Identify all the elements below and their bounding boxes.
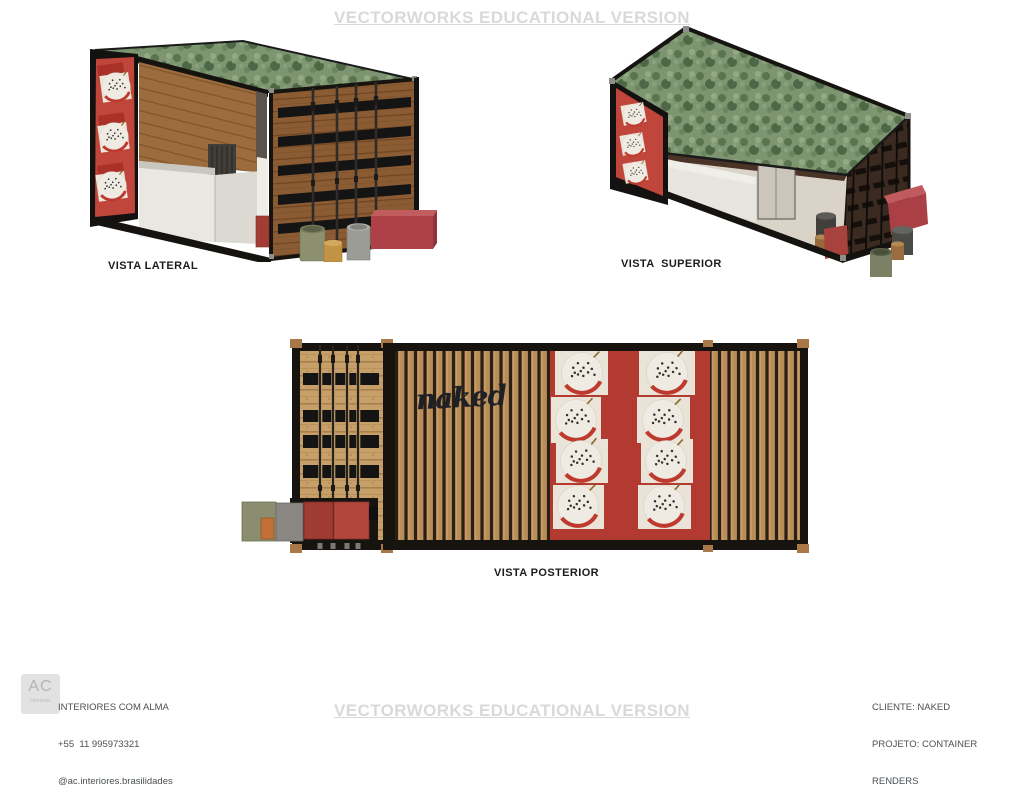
vista-superior-render (608, 26, 928, 294)
presentation-page: VECTORWORKS EDUCATIONAL VERSION VECTORWO… (0, 0, 1024, 724)
footer-studio-name: INTERIORES COM ALMA (58, 702, 173, 714)
vista-posterior-render: naked (235, 335, 815, 557)
ac-logo-subtext: interiores (21, 698, 60, 704)
ac-logo-initials: AC (21, 679, 60, 695)
footer-project-type: RENDERS (872, 776, 977, 788)
watermark-top: VECTORWORKS EDUCATIONAL VERSION (0, 8, 1024, 28)
footer-project: PROJETO: CONTAINER (872, 739, 977, 751)
vista-lateral-render (85, 30, 440, 262)
posterior-boxes (242, 498, 378, 543)
posterior-fruit-panel (550, 349, 710, 540)
footer-client: CLIENTE: NAKED (872, 702, 977, 714)
ac-logo: AC interiores (21, 674, 60, 714)
naked-sign: naked (415, 379, 507, 417)
label-vista-superior: VISTA SUPERIOR (621, 258, 722, 270)
posterior-divider (383, 343, 395, 550)
footer-instagram-handle: @ac.interiores.brasilidades (58, 776, 173, 788)
label-vista-lateral: VISTA LATERAL (108, 260, 198, 272)
footer-project-block: CLIENTE: NAKED PROJETO: CONTAINER RENDER… (872, 678, 977, 812)
footer-contact-block: INTERIORES COM ALMA +55 11 995973321 @ac… (58, 678, 173, 812)
posterior-slat-section-left: naked (395, 351, 550, 540)
posterior-slat-section-right (710, 351, 800, 540)
footer-phone: +55 11 995973321 (58, 739, 173, 751)
lateral-fruit-panel (90, 49, 138, 227)
label-vista-posterior: VISTA POSTERIOR (494, 567, 599, 579)
